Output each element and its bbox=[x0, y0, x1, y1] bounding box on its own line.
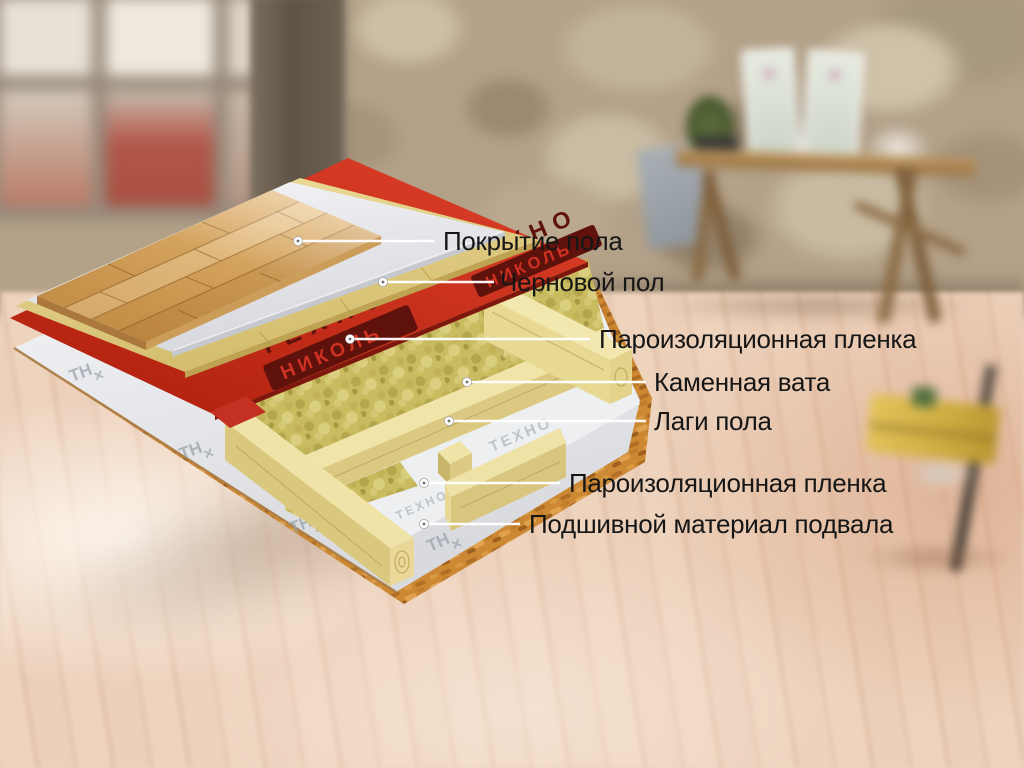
label-vapor-film-top: Пароизоляционная пленка bbox=[599, 324, 916, 354]
floor-layers-diagram: ТН✕ ТН✕ ТН✕ ТН✕ ТЕХНО ТЕХНО bbox=[0, 0, 1024, 768]
label-vapor-film-bottom: Пароизоляционная пленка bbox=[569, 468, 886, 498]
label-basement-lining: Подшивной материал подвала bbox=[529, 509, 893, 539]
scene: ТН✕ ТН✕ ТН✕ ТН✕ ТЕХНО ТЕХНО bbox=[0, 0, 1024, 768]
label-floor-covering: Покрытие пола bbox=[443, 226, 622, 256]
label-joists: Лаги пола bbox=[654, 406, 772, 436]
label-mineral-wool: Каменная вата bbox=[654, 367, 830, 397]
label-subfloor: Черновой пол bbox=[500, 267, 664, 297]
